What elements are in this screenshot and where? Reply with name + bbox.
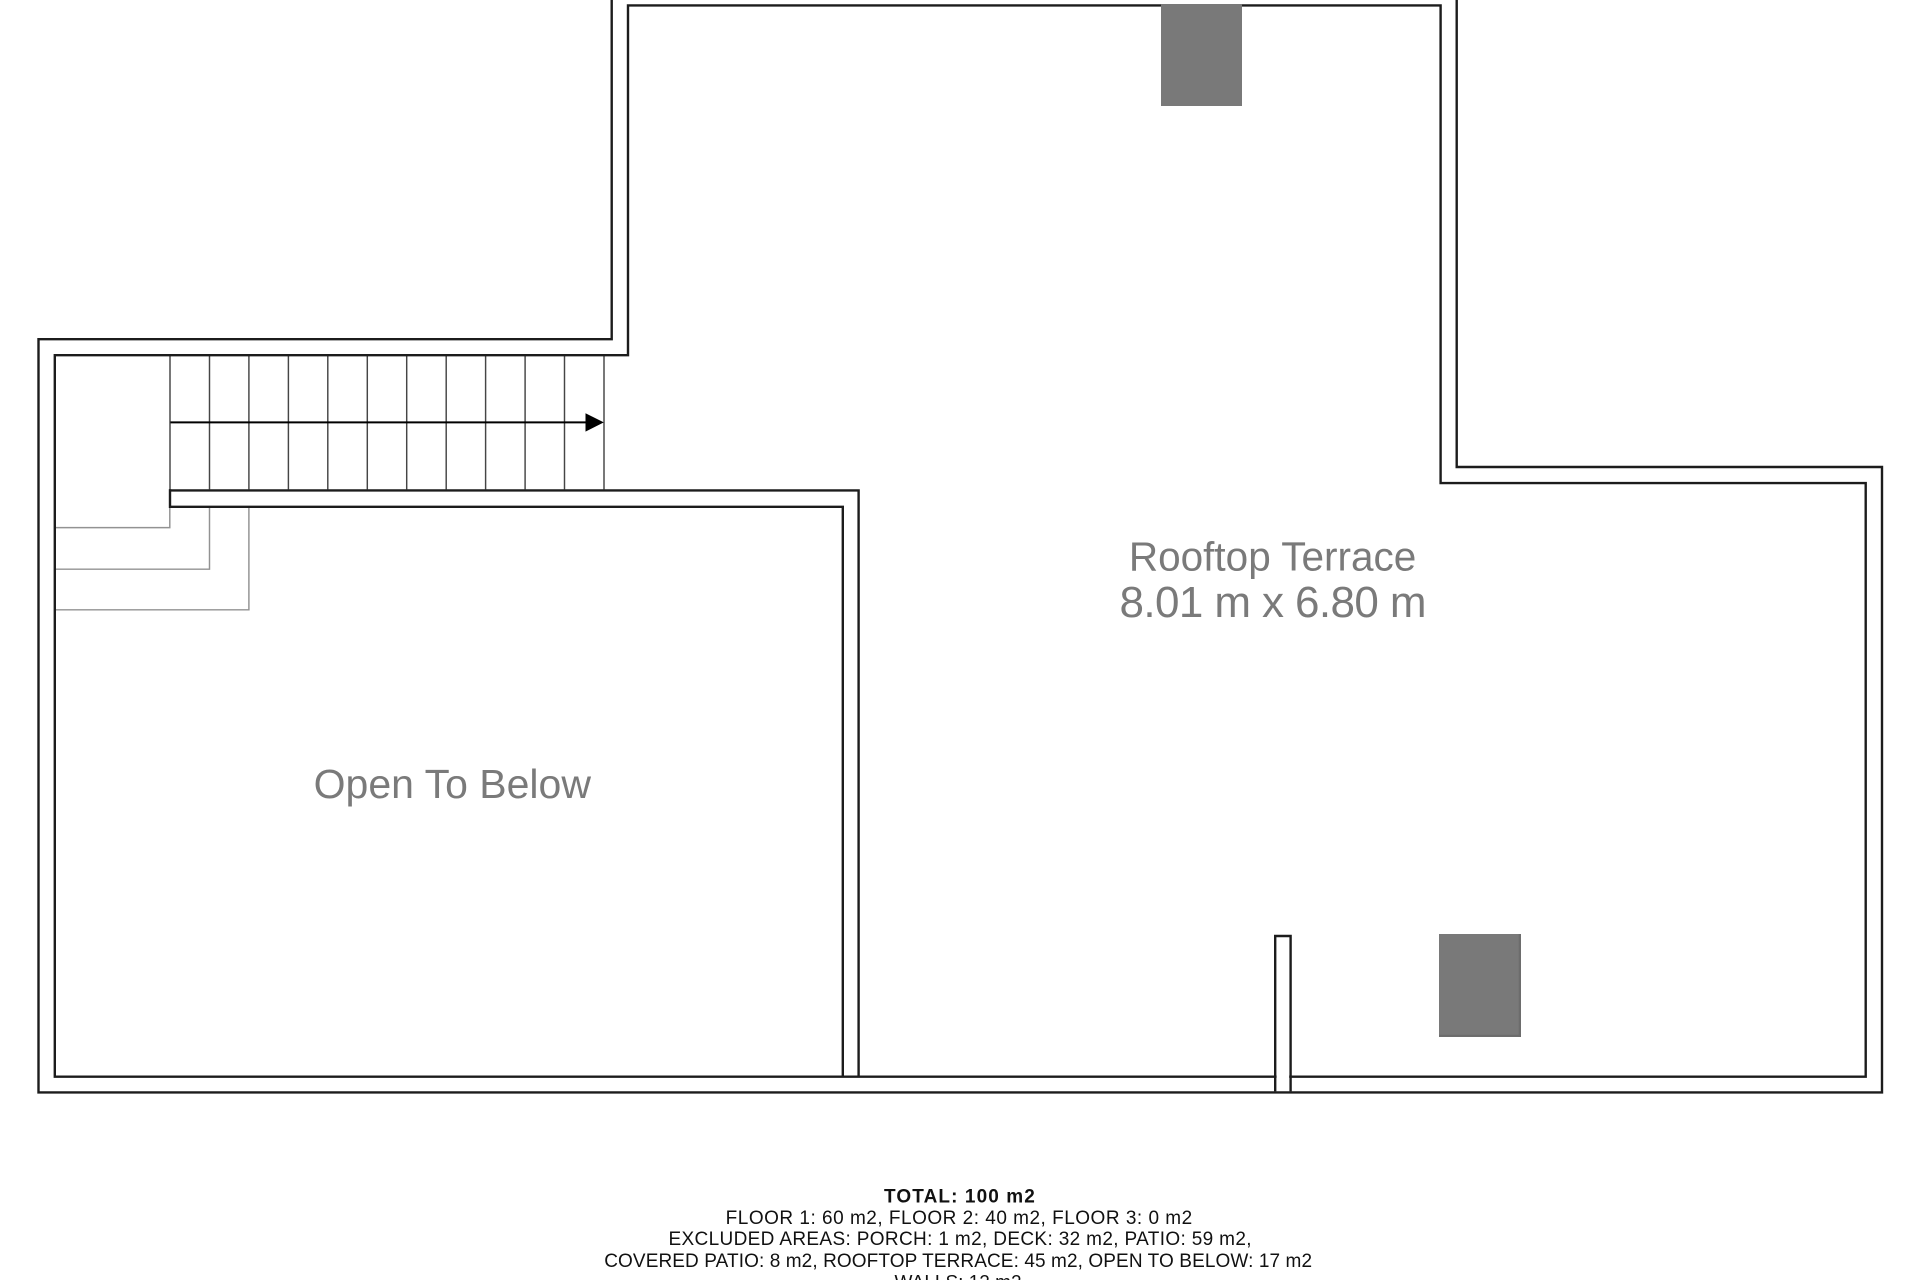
svg-text:TOTAL: 100 m2: TOTAL: 100 m2 bbox=[884, 1186, 1036, 1207]
svg-text:8.01 m x 6.80 m: 8.01 m x 6.80 m bbox=[1119, 578, 1425, 627]
svg-text:COVERED PATIO: 8 m2, ROOFTOP T: COVERED PATIO: 8 m2, ROOFTOP TERRACE: 45… bbox=[604, 1251, 1312, 1272]
svg-text:EXCLUDED AREAS: PORCH: 1 m2, D: EXCLUDED AREAS: PORCH: 1 m2, DECK: 32 m2… bbox=[668, 1229, 1251, 1250]
svg-text:Open To Below: Open To Below bbox=[314, 761, 592, 807]
svg-text:FLOOR 1: 60 m2, FLOOR 2: 40 m2: FLOOR 1: 60 m2, FLOOR 2: 40 m2, FLOOR 3:… bbox=[726, 1208, 1193, 1229]
svg-text:Rooftop Terrace: Rooftop Terrace bbox=[1129, 533, 1416, 579]
svg-text:WALLS: 12 m2: WALLS: 12 m2 bbox=[894, 1272, 1021, 1280]
